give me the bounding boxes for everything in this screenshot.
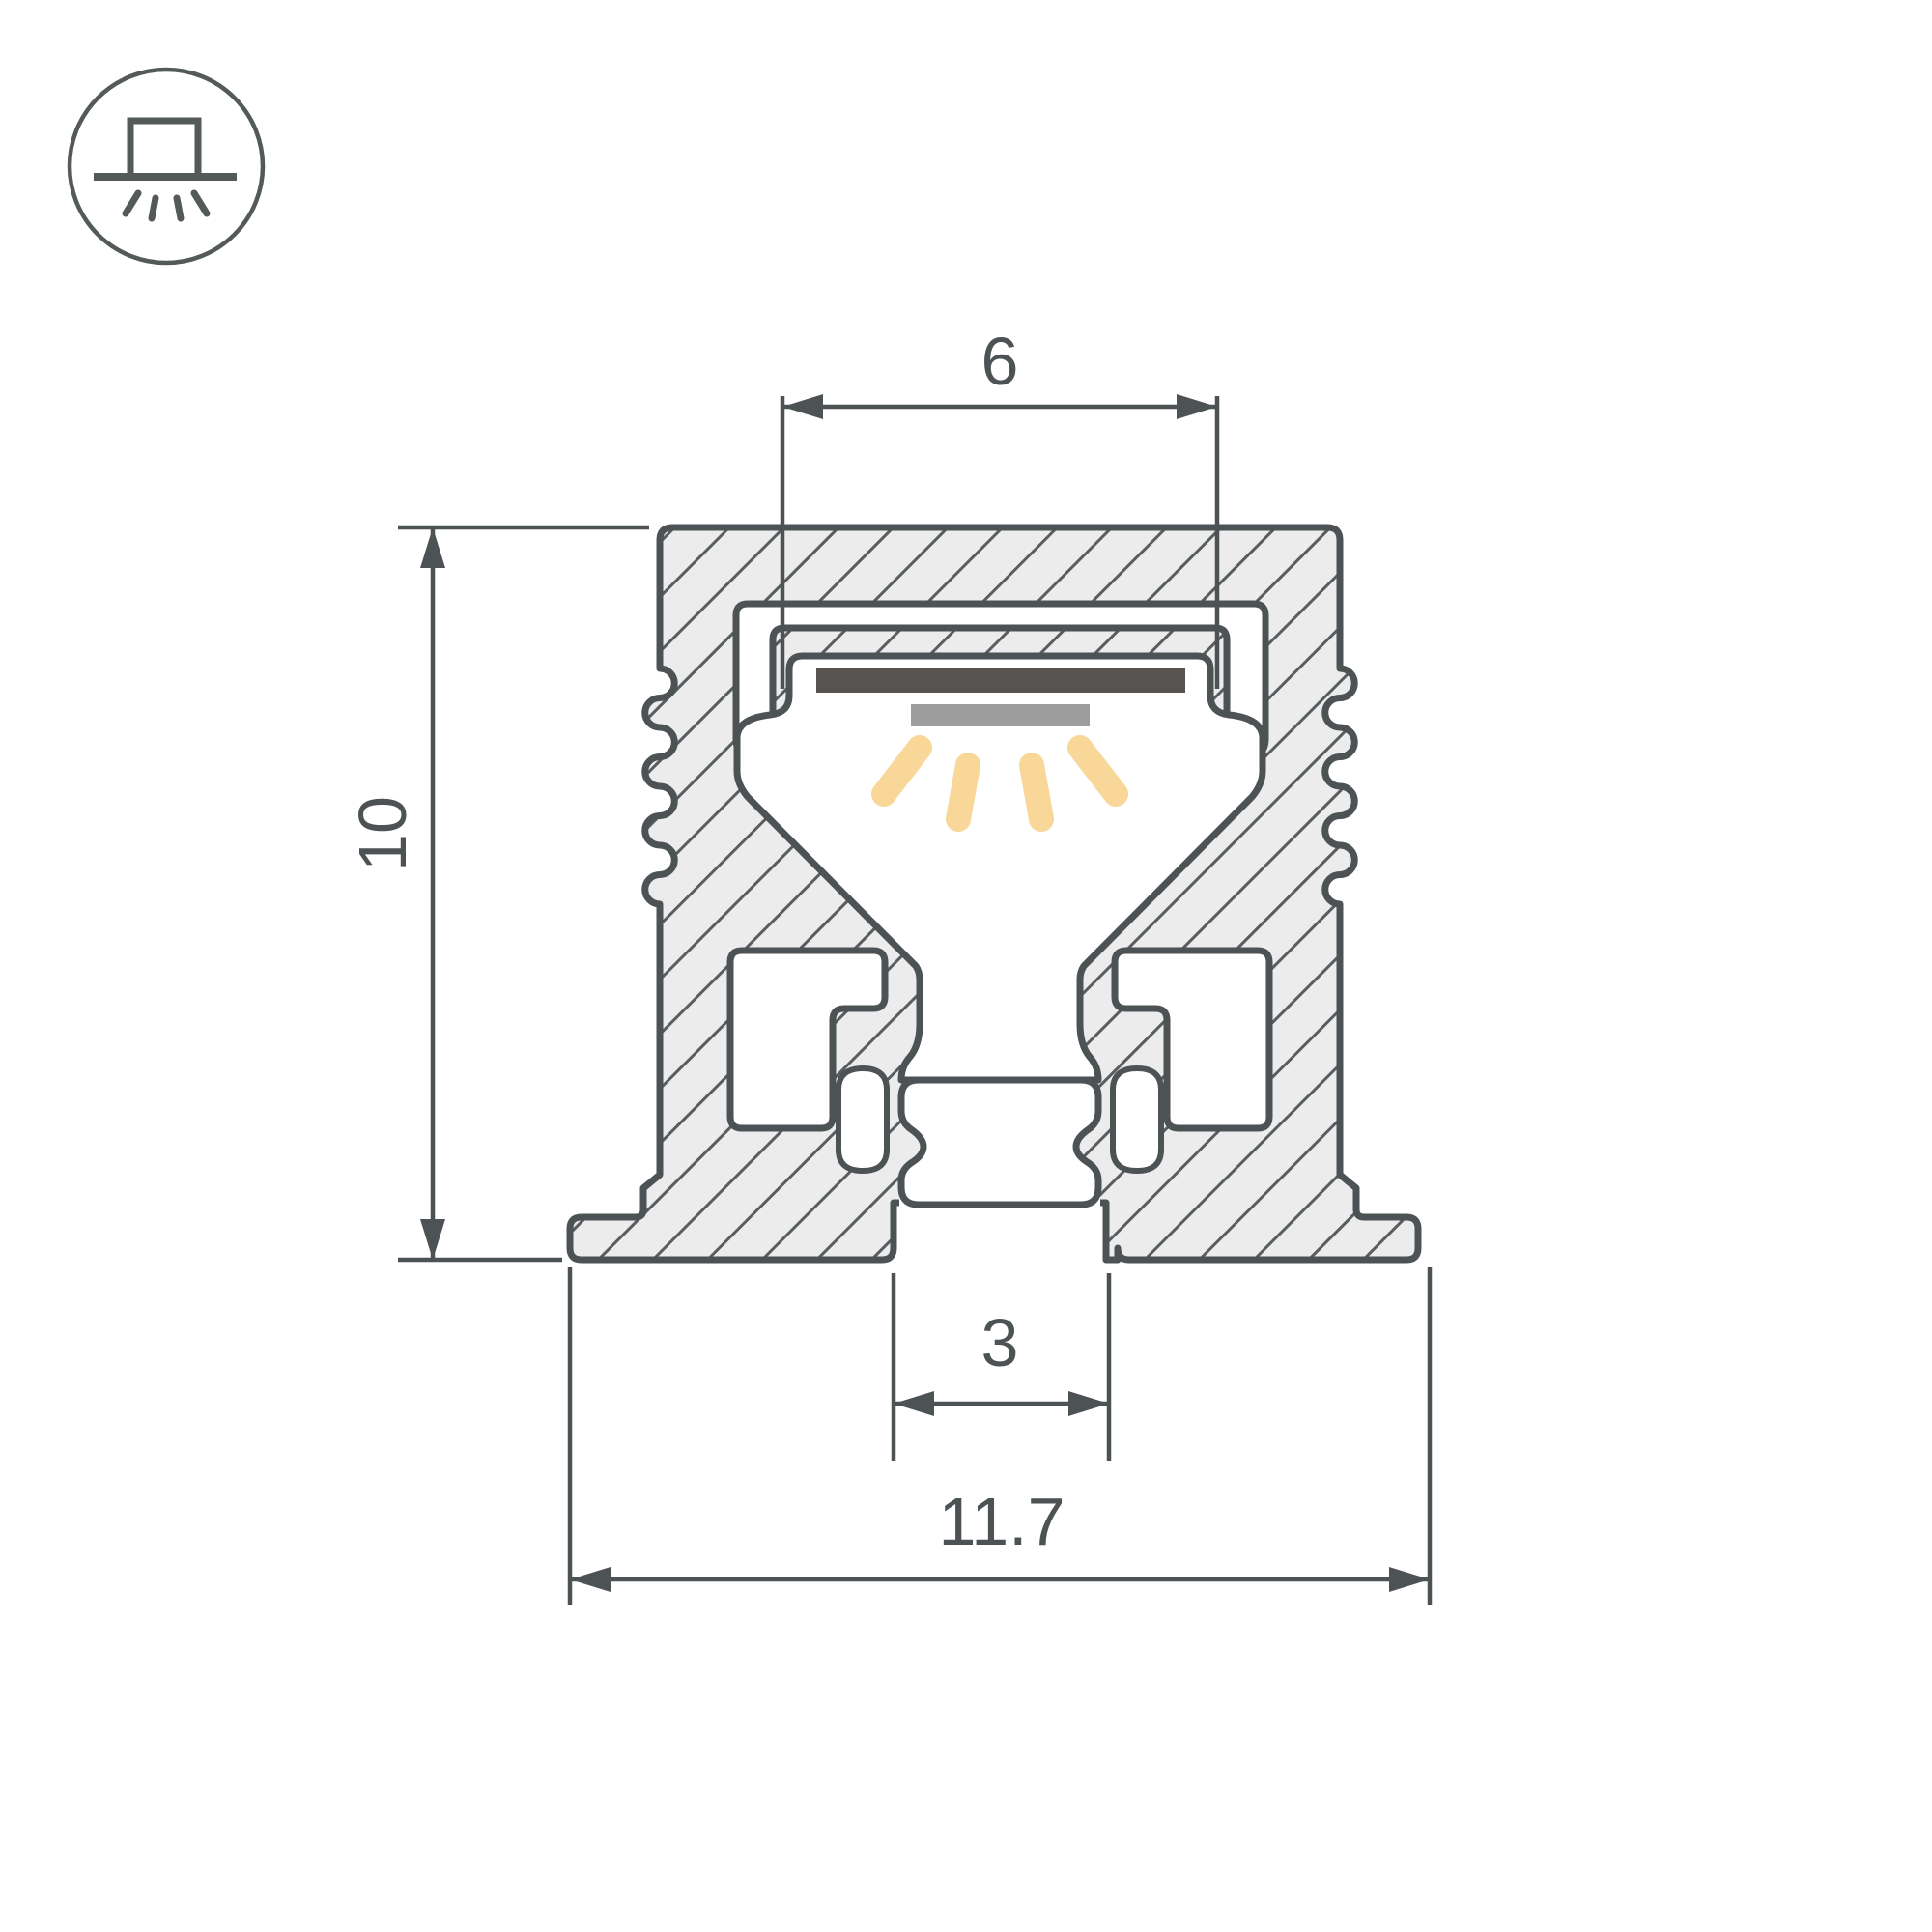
light-ray <box>1032 765 1041 819</box>
left-relief-slot <box>838 1068 887 1171</box>
dimension-overall-height: 10 <box>345 527 649 1260</box>
arrowhead-left <box>782 394 823 419</box>
arrowhead-right <box>1177 394 1217 419</box>
led-emitter-bar <box>911 704 1090 726</box>
arrowhead-left <box>570 1567 611 1592</box>
profile-drawing: 6 10 3 11.7 <box>0 0 1932 1932</box>
right-relief-slot <box>1113 1068 1161 1171</box>
led-strip-bar <box>816 668 1185 693</box>
dimension-label-slot: 3 <box>981 1305 1019 1380</box>
arrowhead-down <box>420 1219 445 1260</box>
dimension-label-top: 6 <box>981 324 1019 399</box>
dimension-bottom-slot-width: 3 <box>894 1273 1109 1461</box>
bottom-channel-cutout <box>901 1080 1098 1205</box>
arrowhead-left <box>894 1391 934 1416</box>
arrowhead-up <box>420 527 445 568</box>
arrowhead-right <box>1389 1567 1430 1592</box>
dimension-label-height: 10 <box>345 796 420 871</box>
icon-light-rays <box>126 193 207 218</box>
drawing-canvas: 6 10 3 11.7 <box>0 0 1932 1932</box>
mounting-type-icon <box>70 70 263 263</box>
light-ray <box>958 765 968 819</box>
profile-section <box>570 527 1418 1273</box>
dimension-label-width: 11.7 <box>938 1484 1065 1559</box>
icon-fixture-box <box>130 121 198 177</box>
icon-circle <box>70 70 263 263</box>
arrowhead-right <box>1068 1391 1109 1416</box>
